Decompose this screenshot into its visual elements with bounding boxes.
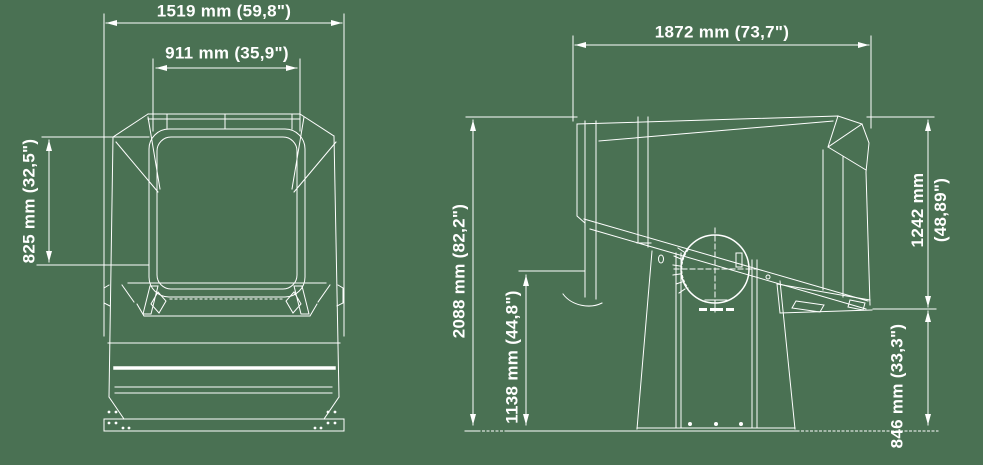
dim-label-pedestal-height: 846 mm (33,3") bbox=[888, 324, 907, 449]
pedestal bbox=[637, 251, 795, 429]
dim-label-rear-height: 1138 mm (44,8") bbox=[503, 290, 522, 424]
dim-label-overall-height: 2088 mm (82,2") bbox=[450, 204, 469, 338]
dim-label-overall-width: 1519 mm (59,8") bbox=[157, 2, 291, 21]
line-art bbox=[0, 0, 983, 465]
lens-window-outer bbox=[149, 129, 305, 297]
dim-label-head-height: 1242 mm (48,89") bbox=[906, 173, 952, 248]
dim-label-lens-height: 825 mm (32,5") bbox=[20, 139, 39, 264]
dim-label-lens-width: 911 mm (35,9") bbox=[165, 44, 289, 63]
dimension-lines bbox=[49, 23, 928, 425]
side-view-drawing bbox=[465, 116, 938, 431]
front-base-bolts bbox=[108, 411, 337, 430]
lens-window-inner bbox=[157, 137, 297, 289]
brand-mark bbox=[699, 308, 734, 311]
dimension-drawing: 1519 mm (59,8") 911 mm (35,9") 825 mm (3… bbox=[0, 0, 983, 465]
dim-label-overall-depth: 1872 mm (73,7") bbox=[655, 23, 789, 42]
pedestal-bolts bbox=[688, 422, 743, 426]
front-view-drawing bbox=[104, 114, 344, 431]
